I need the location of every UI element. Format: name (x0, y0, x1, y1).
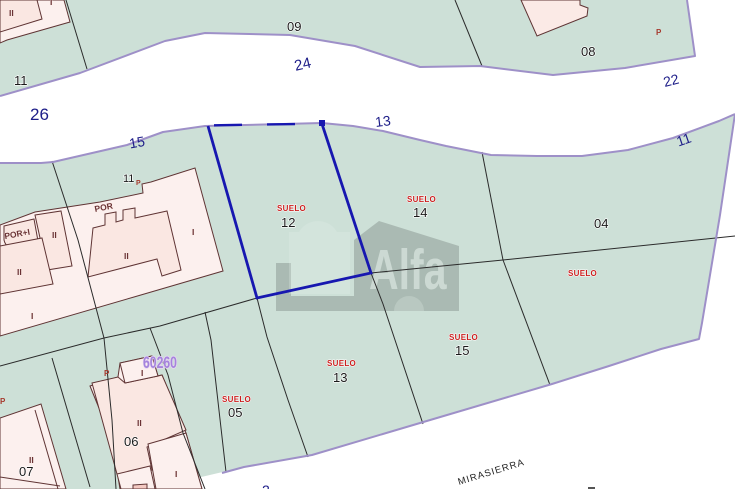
svg-text:II: II (137, 418, 142, 428)
svg-text:SUELO: SUELO (222, 395, 251, 404)
svg-text:07: 07 (19, 464, 33, 479)
svg-text:15: 15 (128, 133, 146, 151)
svg-text:P: P (0, 397, 6, 406)
svg-text:13: 13 (374, 112, 392, 130)
svg-text:P: P (136, 180, 141, 187)
svg-text:SUELO: SUELO (327, 359, 356, 368)
svg-text:05: 05 (228, 405, 242, 420)
svg-text:SUELO: SUELO (407, 195, 436, 204)
svg-text:II: II (17, 267, 22, 277)
svg-text:14: 14 (413, 205, 427, 220)
svg-text:P: P (104, 369, 110, 378)
svg-text:12: 12 (281, 215, 295, 230)
svg-text:11: 11 (123, 173, 134, 185)
svg-text:II: II (124, 251, 129, 261)
svg-text:SUELO: SUELO (568, 269, 597, 278)
svg-text:I: I (31, 311, 33, 321)
svg-text:13: 13 (333, 370, 347, 385)
svg-text:04: 04 (594, 216, 608, 231)
svg-text:60260: 60260 (143, 354, 177, 372)
svg-text:09: 09 (287, 19, 301, 34)
svg-text:I: I (50, 0, 52, 7)
svg-text:26: 26 (30, 105, 49, 124)
svg-text:08: 08 (581, 44, 595, 59)
svg-text:I: I (175, 469, 177, 479)
svg-text:II: II (52, 230, 57, 240)
svg-text:11: 11 (14, 73, 28, 88)
svg-text:SUELO: SUELO (449, 333, 478, 342)
svg-text:I: I (141, 368, 143, 378)
svg-text:2: 2 (262, 482, 270, 489)
svg-text:06: 06 (124, 434, 138, 449)
svg-text:P: P (656, 28, 662, 37)
svg-text:SUELO: SUELO (277, 204, 306, 213)
svg-text:I: I (192, 227, 194, 237)
svg-text:II: II (9, 8, 14, 18)
svg-text:15: 15 (455, 343, 469, 358)
